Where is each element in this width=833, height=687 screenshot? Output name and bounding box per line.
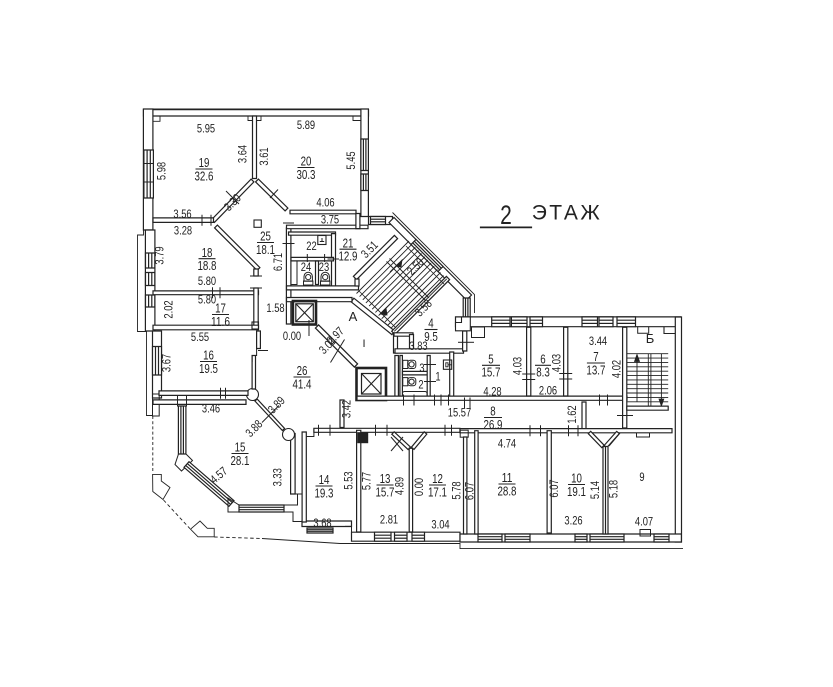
svg-text:А: А [349,309,358,324]
svg-text:3.67: 3.67 [160,354,174,372]
svg-text:9: 9 [639,470,644,484]
svg-text:0.00: 0.00 [412,478,426,496]
svg-text:5.80: 5.80 [198,274,216,288]
svg-text:4.74: 4.74 [498,437,516,451]
svg-text:5.80: 5.80 [198,293,216,307]
svg-text:41.4: 41.4 [293,377,312,391]
svg-text:3: 3 [419,361,424,375]
svg-text:11.6: 11.6 [211,315,230,329]
svg-text:17.1: 17.1 [428,485,447,499]
svg-text:12.9: 12.9 [339,250,358,264]
svg-text:11: 11 [502,471,513,485]
svg-text:1.62: 1.62 [565,405,579,423]
svg-text:5.95: 5.95 [197,122,215,136]
svg-text:24: 24 [301,260,312,274]
svg-text:26.9: 26.9 [484,418,503,432]
svg-text:5.77: 5.77 [360,472,374,490]
svg-text:3.26: 3.26 [564,514,582,528]
svg-text:2: 2 [418,378,423,392]
svg-text:15.7: 15.7 [376,485,395,499]
svg-text:8: 8 [490,405,495,419]
svg-text:3.75: 3.75 [321,213,339,227]
svg-text:3.56: 3.56 [173,207,191,221]
svg-text:3.64: 3.64 [235,145,249,163]
svg-text:4.03: 4.03 [511,357,525,375]
svg-text:19.1: 19.1 [567,485,586,499]
svg-text:13: 13 [380,472,391,486]
svg-text:5.55: 5.55 [191,330,209,344]
svg-text:7: 7 [593,350,598,364]
svg-text:4.07: 4.07 [635,515,653,529]
svg-text:26: 26 [297,364,308,378]
svg-text:3.33: 3.33 [271,468,285,486]
svg-text:5.78: 5.78 [450,481,464,499]
svg-text:19.5: 19.5 [199,362,218,376]
svg-text:ЭТАЖ: ЭТАЖ [532,202,603,225]
svg-text:2: 2 [500,200,512,230]
svg-text:14: 14 [319,473,330,487]
svg-text:5.53: 5.53 [342,471,356,489]
svg-text:3.46: 3.46 [202,402,220,416]
svg-text:3.42: 3.42 [340,400,354,418]
svg-text:4.02: 4.02 [610,360,624,378]
svg-text:18: 18 [202,246,213,260]
svg-text:4: 4 [428,317,433,331]
svg-text:2.06: 2.06 [539,384,557,398]
svg-text:Б: Б [646,331,655,346]
svg-text:18.8: 18.8 [198,259,217,273]
svg-text:16: 16 [203,349,214,363]
svg-text:5.98: 5.98 [155,162,169,180]
svg-text:15.57: 15.57 [448,406,472,420]
svg-text:28.1: 28.1 [231,454,250,468]
svg-text:3.28: 3.28 [174,224,192,238]
svg-text:3.61: 3.61 [257,147,271,165]
svg-text:21: 21 [343,236,354,250]
svg-text:28.8: 28.8 [498,484,517,498]
svg-text:1: 1 [435,370,440,384]
svg-text:0.00: 0.00 [283,329,301,343]
svg-text:5: 5 [488,353,493,367]
svg-text:4.03: 4.03 [550,354,564,372]
svg-text:6.71: 6.71 [271,253,285,271]
svg-text:3.83: 3.83 [409,339,427,353]
svg-text:1.58: 1.58 [266,301,284,315]
svg-text:20: 20 [301,155,312,169]
svg-text:4.06: 4.06 [316,196,334,210]
svg-text:3.44: 3.44 [589,334,607,348]
svg-text:5.14: 5.14 [588,481,602,499]
svg-text:6.07: 6.07 [463,482,477,500]
svg-text:32.6: 32.6 [195,169,214,183]
svg-text:15: 15 [235,441,246,455]
svg-text:4.89: 4.89 [393,477,407,495]
svg-text:30.3: 30.3 [297,168,316,182]
svg-text:2.02: 2.02 [162,300,176,318]
svg-text:5.18: 5.18 [607,480,621,498]
svg-text:5.45: 5.45 [344,151,358,169]
svg-text:17: 17 [215,302,226,316]
svg-text:6: 6 [540,353,545,367]
svg-text:3.04: 3.04 [431,518,449,532]
svg-text:2.81: 2.81 [380,513,398,527]
svg-text:12: 12 [432,472,443,486]
svg-text:15.7: 15.7 [482,366,501,380]
svg-text:23: 23 [319,260,330,274]
svg-text:8.3: 8.3 [536,366,550,380]
svg-text:19.3: 19.3 [315,486,334,500]
svg-text:19: 19 [199,156,210,170]
svg-text:I: I [362,338,365,350]
svg-text:13.7: 13.7 [586,363,605,377]
svg-text:4.28: 4.28 [483,385,501,399]
svg-text:10: 10 [571,472,582,486]
svg-text:5.89: 5.89 [297,118,315,132]
svg-text:3.68: 3.68 [313,516,331,530]
svg-text:3.79: 3.79 [153,246,167,264]
svg-text:25: 25 [260,230,271,244]
svg-text:22: 22 [306,239,317,253]
svg-text:6.07: 6.07 [547,479,561,497]
